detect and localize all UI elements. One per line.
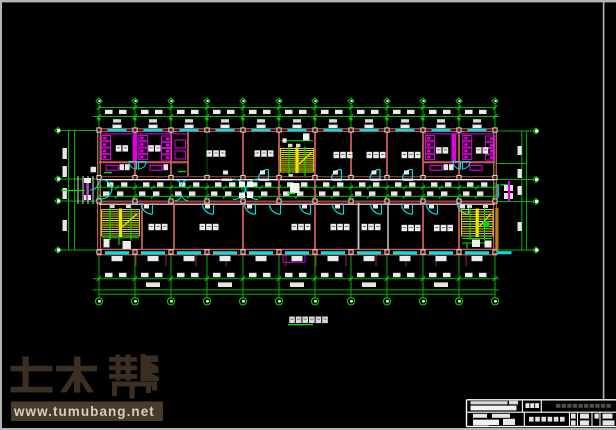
svg-text:www.tumubang.net: www.tumubang.net [13, 404, 155, 419]
